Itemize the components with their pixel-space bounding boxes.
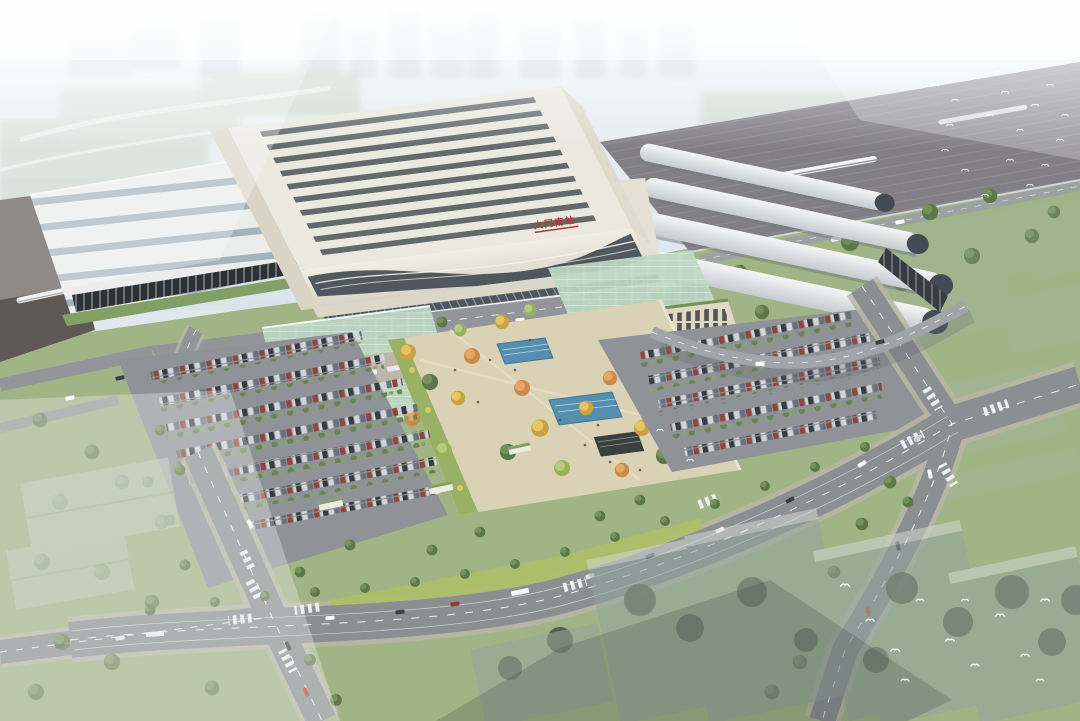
global-haze (0, 0, 1080, 721)
aerial-rendering: 大同南站 (0, 0, 1080, 721)
scene-canvas: 大同南站 (0, 0, 1080, 721)
